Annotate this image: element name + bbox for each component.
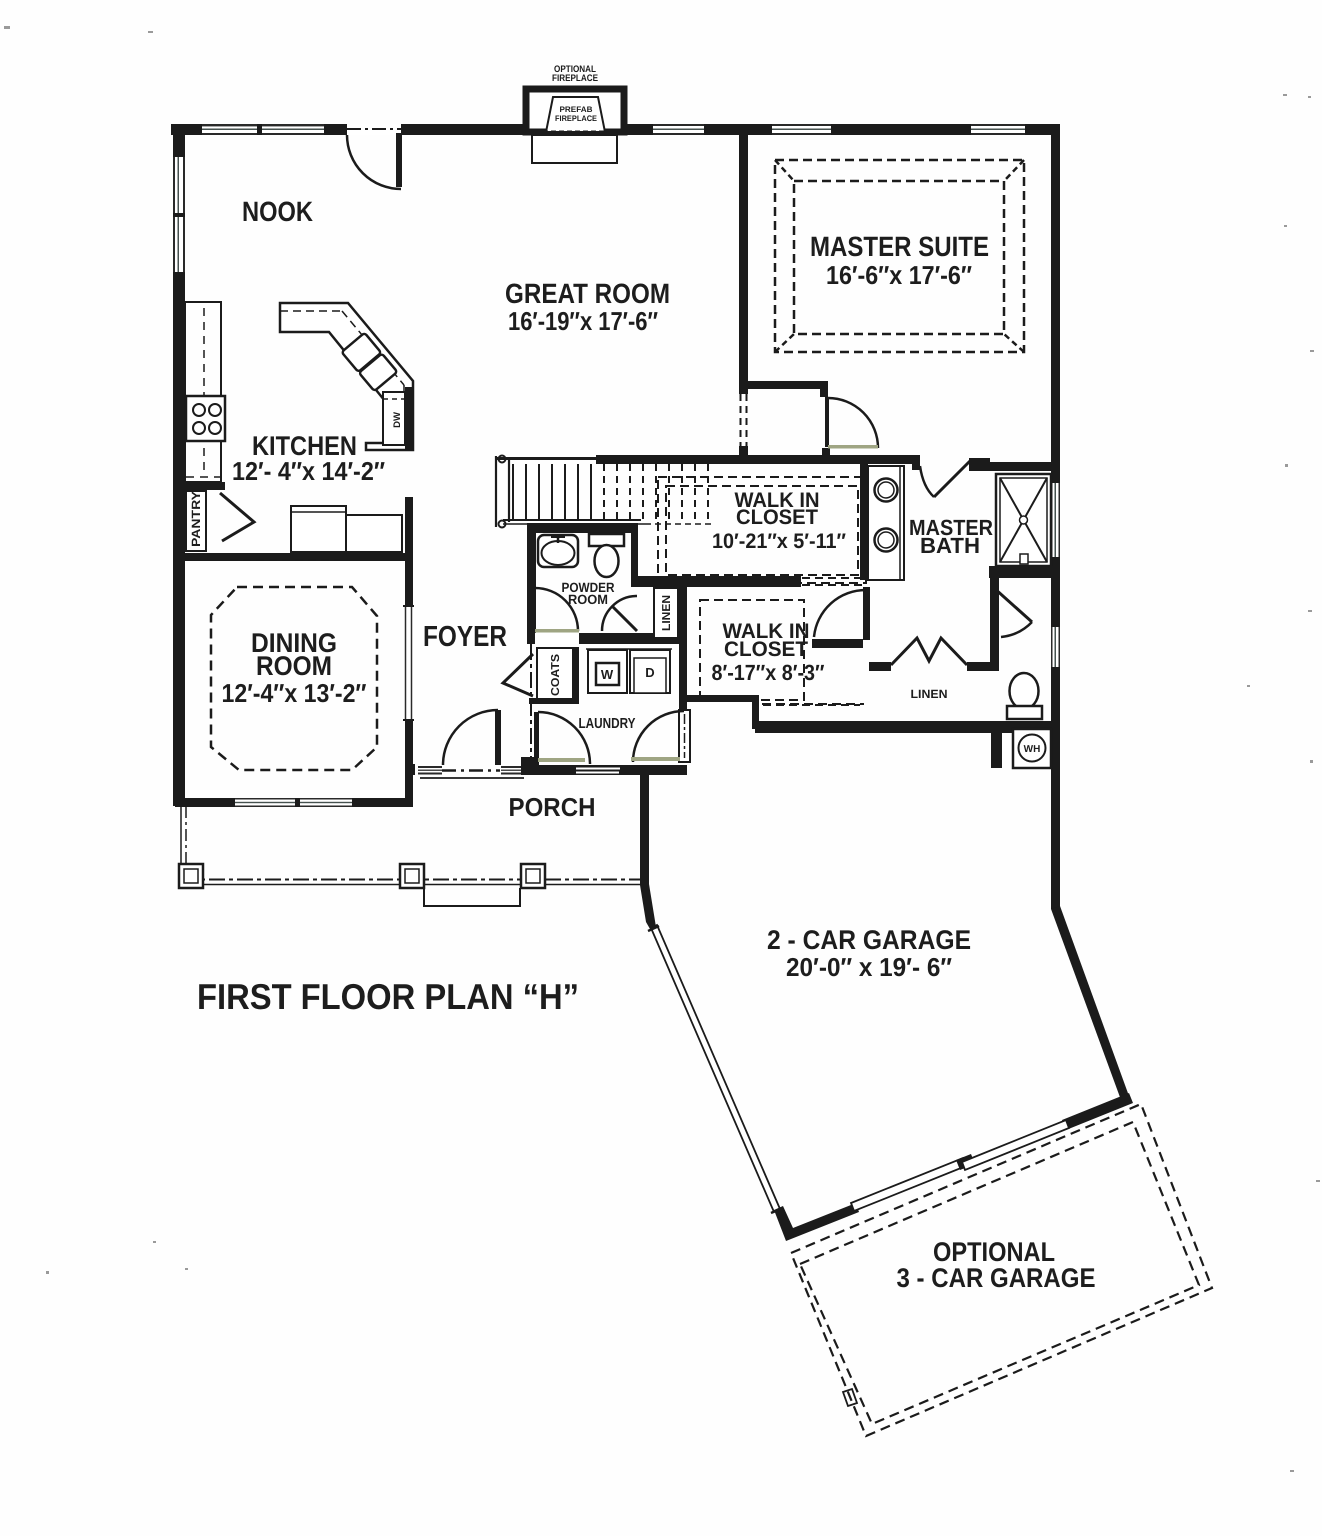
svg-text:12′-4″x 13′-2″: 12′-4″x 13′-2″: [222, 678, 367, 708]
svg-text:BATH: BATH: [920, 533, 980, 558]
svg-text:16′-6″x 17′-6″: 16′-6″x 17′-6″: [826, 260, 972, 290]
svg-text:NOOK: NOOK: [242, 196, 313, 227]
svg-text:GREAT ROOM: GREAT ROOM: [505, 278, 670, 309]
svg-text:LINEN: LINEN: [661, 595, 673, 631]
svg-text:ROOM: ROOM: [256, 651, 332, 681]
svg-text:PREFAB: PREFAB: [560, 105, 593, 114]
svg-text:W: W: [601, 667, 614, 682]
svg-text:16′-19″x 17′-6″: 16′-19″x 17′-6″: [508, 306, 658, 336]
svg-text:MASTER SUITE: MASTER SUITE: [810, 231, 989, 262]
svg-text:8′-17″x 8′-3″: 8′-17″x 8′-3″: [712, 660, 825, 685]
svg-text:PORCH: PORCH: [509, 792, 596, 822]
svg-text:COATS: COATS: [550, 654, 562, 696]
svg-text:3 - CAR GARAGE: 3 - CAR GARAGE: [897, 1263, 1096, 1293]
svg-text:12′- 4″x 14′-2″: 12′- 4″x 14′-2″: [232, 456, 385, 486]
svg-text:FIRST FLOOR PLAN “H”: FIRST FLOOR PLAN “H”: [197, 976, 579, 1017]
svg-text:FIREPLACE: FIREPLACE: [552, 73, 598, 84]
svg-text:FOYER: FOYER: [423, 621, 507, 653]
svg-text:DW: DW: [392, 412, 403, 428]
svg-text:LAUNDRY: LAUNDRY: [579, 716, 636, 732]
svg-text:WH: WH: [1024, 744, 1041, 755]
svg-text:10′-21″x 5′-11″: 10′-21″x 5′-11″: [712, 530, 846, 553]
svg-text:CLOSET: CLOSET: [736, 506, 818, 529]
svg-text:PANTRY: PANTRY: [189, 491, 203, 547]
svg-text:20′-0″ x 19′- 6″: 20′-0″ x 19′- 6″: [786, 952, 952, 982]
svg-text:CLOSET: CLOSET: [724, 638, 808, 661]
svg-text:ROOM: ROOM: [568, 592, 608, 607]
svg-text:LINEN: LINEN: [911, 687, 948, 701]
svg-text:D: D: [645, 665, 654, 680]
svg-text:2 - CAR GARAGE: 2 - CAR GARAGE: [767, 925, 971, 955]
svg-text:FIREPLACE: FIREPLACE: [555, 114, 598, 123]
